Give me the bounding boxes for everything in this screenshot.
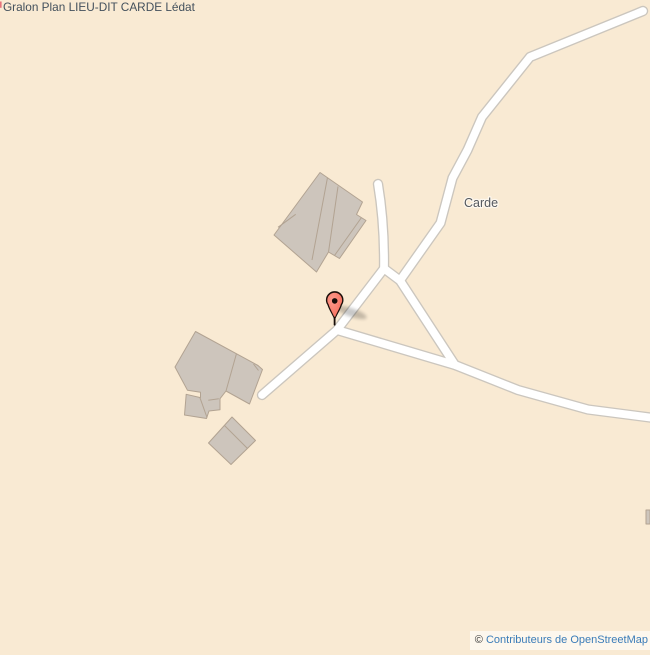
svg-text:Carde: Carde: [464, 196, 498, 210]
